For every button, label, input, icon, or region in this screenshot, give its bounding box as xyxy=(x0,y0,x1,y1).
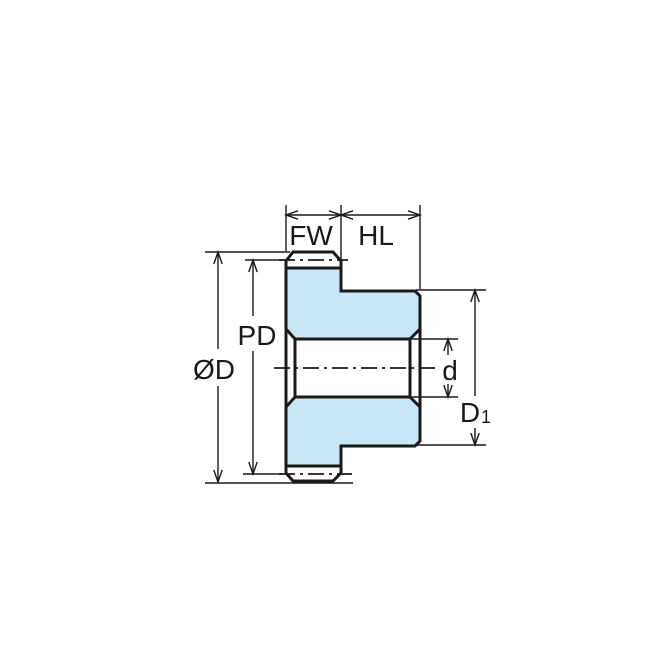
gear-section xyxy=(274,252,437,481)
gear-dimension-diagram: FW HL ØD PD d xyxy=(0,0,670,670)
od-label: ØD xyxy=(193,354,235,385)
d-label: d xyxy=(442,355,458,386)
pd-dimension: PD xyxy=(238,260,283,474)
hl-dimension: HL xyxy=(341,205,420,289)
fw-label: FW xyxy=(289,220,333,251)
d1-label-subscript: 1 xyxy=(481,407,491,427)
d1-label: D xyxy=(460,397,480,428)
pd-label: PD xyxy=(238,320,277,351)
hl-label: HL xyxy=(358,220,394,251)
drawing-canvas: FW HL ØD PD d xyxy=(0,0,670,670)
